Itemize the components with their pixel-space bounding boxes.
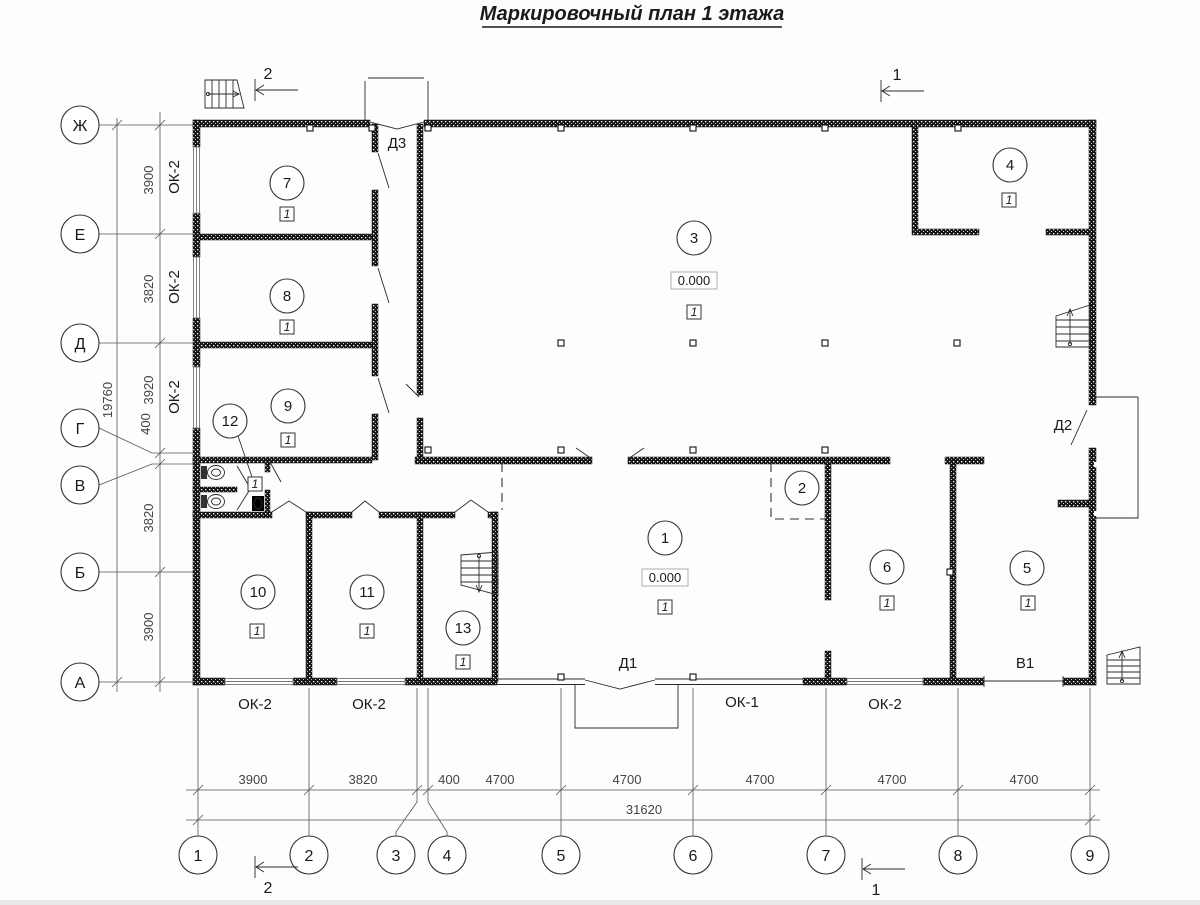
dim-bottom-4: 4700 bbox=[486, 772, 515, 787]
room-6-finish: 1 bbox=[884, 596, 891, 610]
dim-bottom-5: 4700 bbox=[613, 772, 642, 787]
room-7-finish: 1 bbox=[284, 207, 291, 221]
door-d3-label: Д3 bbox=[388, 135, 407, 152]
section-1-top-label: 1 bbox=[893, 67, 902, 84]
porch-d2 bbox=[1096, 397, 1138, 518]
axis-row-g: Г bbox=[76, 421, 85, 438]
room-10-finish: 1 bbox=[254, 624, 261, 638]
porch-d1 bbox=[575, 685, 678, 728]
room-2-number: 2 bbox=[798, 480, 806, 497]
row-axis-markers: Ж Е Д Г В Б А bbox=[61, 106, 99, 701]
axis-row-v: В bbox=[75, 478, 86, 495]
gate-v1-label: В1 bbox=[1016, 655, 1034, 672]
floor-plan-svg: Маркировочный план 1 этажа 3900 3820 392… bbox=[0, 0, 1200, 900]
room-12-number: 12 bbox=[222, 413, 239, 430]
window-ok2-label-left-3: ОК-2 bbox=[166, 380, 183, 414]
windows bbox=[194, 147, 1064, 687]
room-7-number: 7 bbox=[283, 175, 291, 192]
axis-col-9: 9 bbox=[1086, 848, 1095, 865]
axis-row-d: Д bbox=[75, 336, 86, 353]
axis-row-e: Е bbox=[75, 227, 86, 244]
section-1-bottom-label: 1 bbox=[872, 882, 881, 899]
room-12-finish: 1 bbox=[252, 477, 259, 491]
stair-right-interior bbox=[1056, 305, 1090, 347]
dim-bottom-1: 3900 bbox=[239, 772, 268, 787]
col-axis-markers: 1 2 3 4 5 6 7 8 9 bbox=[179, 836, 1109, 874]
window-ok2-label-left-2: ОК-2 bbox=[166, 270, 183, 304]
dim-bottom-2: 3820 bbox=[349, 772, 378, 787]
dim-left-1: 3900 bbox=[141, 166, 156, 195]
axis-col-8: 8 bbox=[954, 848, 963, 865]
porch-d3 bbox=[365, 78, 428, 120]
section-1-top: 1 bbox=[881, 67, 924, 102]
dim-left-3: 3920 bbox=[141, 376, 156, 405]
drawing-title: Маркировочный план 1 этажа bbox=[480, 3, 785, 27]
left-dimension-lines bbox=[112, 112, 165, 692]
window-ok2-label-bottom-1: ОК-2 bbox=[238, 696, 272, 713]
axis-col-5: 5 bbox=[557, 848, 566, 865]
section-1-bottom: 1 bbox=[862, 858, 905, 899]
room-8-number: 8 bbox=[283, 288, 291, 305]
room-9-number: 9 bbox=[284, 398, 292, 415]
room-4-finish: 1 bbox=[1006, 193, 1013, 207]
room-13-finish: 1 bbox=[460, 655, 467, 669]
room-9-finish: 1 bbox=[285, 433, 292, 447]
room-3-number: 3 bbox=[690, 230, 698, 247]
columns bbox=[307, 125, 961, 680]
door-d2-leaf bbox=[1071, 410, 1087, 445]
axis-col-6: 6 bbox=[689, 848, 698, 865]
window-ok2-label-left-1: ОК-2 bbox=[166, 160, 183, 194]
axis-col-1: 1 bbox=[194, 848, 203, 865]
room-10-number: 10 bbox=[250, 584, 267, 601]
window-ok2-label-bottom-3: ОК-2 bbox=[868, 696, 902, 713]
section-2-top-label: 2 bbox=[264, 66, 273, 83]
dim-bottom-8: 4700 bbox=[1010, 772, 1039, 787]
dim-bottom-7: 4700 bbox=[878, 772, 907, 787]
room-13-number: 13 bbox=[455, 620, 472, 637]
room-5-finish: 1 bbox=[1025, 596, 1032, 610]
axis-col-7: 7 bbox=[822, 848, 831, 865]
room-11-number: 11 bbox=[359, 584, 375, 601]
left-dimension-labels: 3900 3820 3920 400 3820 3900 19760 bbox=[100, 166, 156, 642]
room-3-finish: 1 bbox=[691, 305, 698, 319]
stair-top-left bbox=[205, 80, 244, 108]
toilet-icon bbox=[201, 495, 225, 509]
dim-left-2: 3820 bbox=[141, 275, 156, 304]
toilet-icon bbox=[201, 466, 225, 480]
axis-col-4: 4 bbox=[443, 848, 452, 865]
room-1-number: 1 bbox=[661, 530, 669, 547]
dim-left-5: 3820 bbox=[141, 504, 156, 533]
room-6-number: 6 bbox=[883, 559, 891, 576]
room-8-finish: 1 bbox=[284, 320, 291, 334]
bottom-dimension-labels: 3900 3820 400 4700 4700 4700 4700 4700 3… bbox=[239, 772, 1039, 817]
room-4-number: 4 bbox=[1006, 157, 1014, 174]
window-ok1-label: ОК-1 bbox=[725, 694, 759, 711]
axis-col-3: 3 bbox=[392, 848, 401, 865]
axis-row-a: А bbox=[75, 675, 86, 692]
room-5-number: 5 bbox=[1023, 560, 1031, 577]
dim-bottom-6: 4700 bbox=[746, 772, 775, 787]
stair-bottom-right bbox=[1107, 647, 1140, 684]
room-annotations: 7 1 8 1 9 1 12 1 10 1 11 1 13 1 3 0.000 … bbox=[213, 148, 1044, 669]
dim-bottom-3: 400 bbox=[438, 772, 460, 787]
opening-labels: Д3 Д2 Д1 В1 ОК-2 ОК-2 ОК-2 ОК-2 ОК-2 ОК-… bbox=[166, 135, 1072, 713]
door-d1-label: Д1 bbox=[619, 655, 638, 672]
drawing-sheet: Маркировочный план 1 этажа 3900 3820 392… bbox=[0, 0, 1200, 900]
dim-bottom-total: 31620 bbox=[626, 802, 662, 817]
opening-v1 bbox=[984, 676, 1063, 687]
dashed-zones bbox=[502, 463, 825, 519]
page-title: Маркировочный план 1 этажа bbox=[480, 3, 785, 25]
door-d2-label: Д2 bbox=[1054, 417, 1073, 434]
room-3-elevation: 0.000 bbox=[678, 273, 711, 288]
walls bbox=[193, 120, 1096, 685]
dim-left-4: 400 bbox=[138, 413, 153, 435]
dim-left-6: 3900 bbox=[141, 613, 156, 642]
section-2-bottom-label: 2 bbox=[264, 880, 273, 897]
room-1-elevation: 0.000 bbox=[649, 570, 682, 585]
sink-icon bbox=[252, 496, 264, 511]
dim-left-total: 19760 bbox=[100, 382, 115, 418]
axis-row-b: Б bbox=[75, 565, 86, 582]
section-2-top: 2 bbox=[255, 66, 298, 101]
room-1-finish: 1 bbox=[662, 600, 669, 614]
axis-row-zh: Ж bbox=[73, 118, 88, 135]
axis-col-2: 2 bbox=[305, 848, 314, 865]
room-11-finish: 1 bbox=[364, 624, 371, 638]
door-d1-leaves bbox=[585, 680, 655, 689]
window-ok2-label-bottom-2: ОК-2 bbox=[352, 696, 386, 713]
